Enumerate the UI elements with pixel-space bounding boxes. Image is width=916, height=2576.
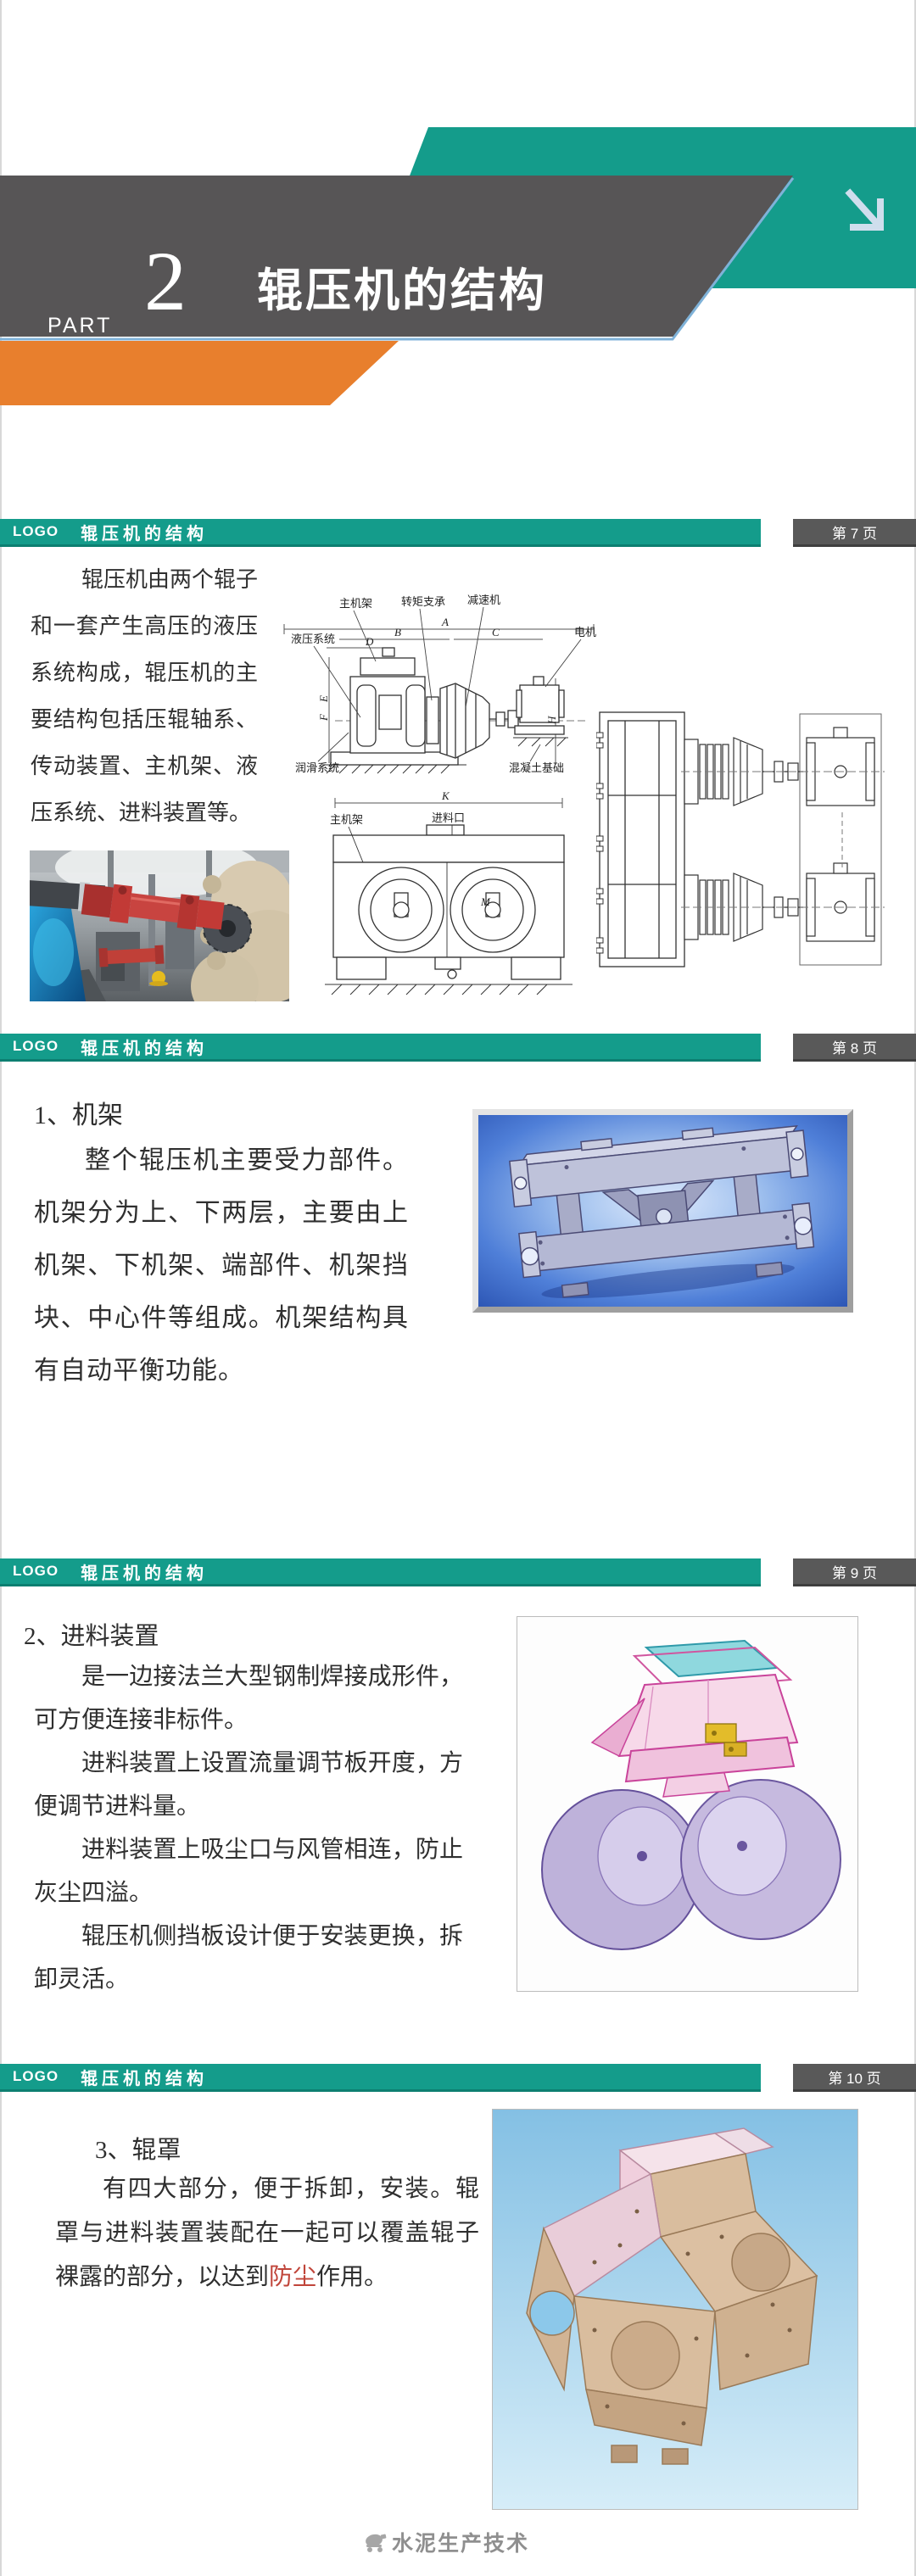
dim-k: K [441, 789, 450, 802]
page-title: 辊压机的结构 [257, 253, 547, 320]
label-lubrication: 润滑系统 [295, 761, 339, 774]
slide10-text-highlight: 防尘 [269, 2264, 316, 2290]
logo-text: LOGO [13, 523, 59, 540]
watermark-text: 水泥生产技术 [392, 2527, 529, 2557]
label-main-frame: 主机架 [339, 597, 372, 610]
logo-text: LOGO [13, 2068, 59, 2085]
label-motor: 电机 [574, 626, 596, 638]
slide9-paragraph: 是一边接法兰大型钢制焊接成形件，可方便连接非标件。 [34, 1655, 463, 1742]
slide7-page-badge: 第 7 页 [793, 519, 916, 547]
slide8-heading: 1、机架 [34, 1094, 123, 1131]
orange-ribbon [0, 341, 399, 405]
dim-h: H [545, 716, 558, 725]
slide10-text-pre: 有四大部分，便于拆卸，安装。辊罩与进料装置装配在一起可以覆盖辊子裸露的部分，以达… [55, 2176, 479, 2290]
label-reducer: 减速机 [467, 594, 500, 606]
front-view-diagram: K 主机架 进料口 M [325, 784, 572, 1012]
slide8-page-badge: 第 8 页 [793, 1034, 916, 1062]
logo-text: LOGO [13, 1563, 59, 1580]
dim-m: M [480, 895, 491, 908]
slide9-heading: 2、进料装置 [24, 1616, 159, 1652]
cement-mixer-icon [363, 2531, 387, 2553]
slide9-body-text: 是一边接法兰大型钢制焊接成形件，可方便连接非标件。 进料装置上设置流量调节板开度… [34, 1655, 463, 2001]
roller-press-photo [30, 850, 289, 1001]
feed-device-cad-image [517, 1616, 858, 1992]
slide10-header-bar: LOGO 辊压机的结构 [0, 2064, 761, 2092]
part-number: 2 [144, 239, 187, 324]
dim-e: E [317, 695, 330, 703]
page-canvas: PART 2 辊压机的结构 LOGO 辊压机的结构 第 7 页 LOGO 辊压机… [0, 0, 916, 2576]
roller-cover-cad-image [492, 2109, 858, 2510]
dim-d: D [365, 635, 374, 648]
slide8-header-bar: LOGO 辊压机的结构 [0, 1034, 761, 1062]
slide7-bar-title: 辊压机的结构 [81, 520, 208, 544]
slide8-body-text: 整个辊压机主要受力部件。机架分为上、下两层，主要由上机架、下机架、端部件、机架挡… [34, 1135, 409, 1397]
slide8-bar-title: 辊压机的结构 [81, 1034, 208, 1059]
part-label: PART [47, 314, 112, 338]
slide9-paragraph: 进料装置上设置流量调节板开度，方便调节进料量。 [34, 1742, 463, 1828]
watermark: 水泥生产技术 [363, 2527, 529, 2557]
feed-device-cad-render [517, 1617, 857, 1991]
slide9-paragraph: 辊压机侧挡板设计便于安装更换，拆卸灵活。 [34, 1915, 463, 2001]
label-front-main-frame: 主机架 [330, 813, 363, 826]
dim-f: F [317, 713, 330, 722]
dim-a: A [441, 616, 449, 628]
slide9-paragraph: 进料装置上吸尘口与风管相连，防止灰尘四溢。 [34, 1828, 463, 1915]
frame-cad-image [472, 1109, 853, 1313]
frame-cad-render [478, 1115, 847, 1307]
slide9-header-bar: LOGO 辊压机的结构 [0, 1558, 761, 1586]
dim-c: C [492, 626, 500, 638]
slide10-body-text: 有四大部分，便于拆卸，安装。辊罩与进料装置装配在一起可以覆盖辊子裸露的部分，以达… [55, 2167, 479, 2300]
label-hydraulic: 液压系统 [291, 633, 335, 645]
side-view-diagram: 主机架 转矩支承 减速机 电机 液压系统 润滑系统 混凝土基础 A B C D … [157, 551, 598, 776]
slide10-page-badge: 第 10 页 [793, 2064, 916, 2092]
slide10-heading: 3、辊罩 [95, 2130, 182, 2166]
drive-assembly-row [681, 728, 885, 806]
label-torque-support: 转矩支承 [401, 595, 445, 608]
slide9-page-badge: 第 9 页 [793, 1558, 916, 1586]
header-decoration [0, 0, 916, 415]
drive-assembly-row [681, 863, 885, 941]
dim-b: B [394, 626, 401, 638]
label-feed-inlet: 进料口 [432, 811, 465, 824]
roller-cover-cad-render [493, 2110, 857, 2509]
slide7-header-bar: LOGO 辊压机的结构 [0, 519, 761, 547]
plan-view-diagram [596, 711, 916, 969]
logo-text: LOGO [13, 1038, 59, 1055]
slide10-text-post: 作用。 [316, 2264, 388, 2290]
label-foundation: 混凝土基础 [509, 761, 564, 774]
slide9-bar-title: 辊压机的结构 [81, 1559, 208, 1584]
slide10-bar-title: 辊压机的结构 [81, 2065, 208, 2089]
